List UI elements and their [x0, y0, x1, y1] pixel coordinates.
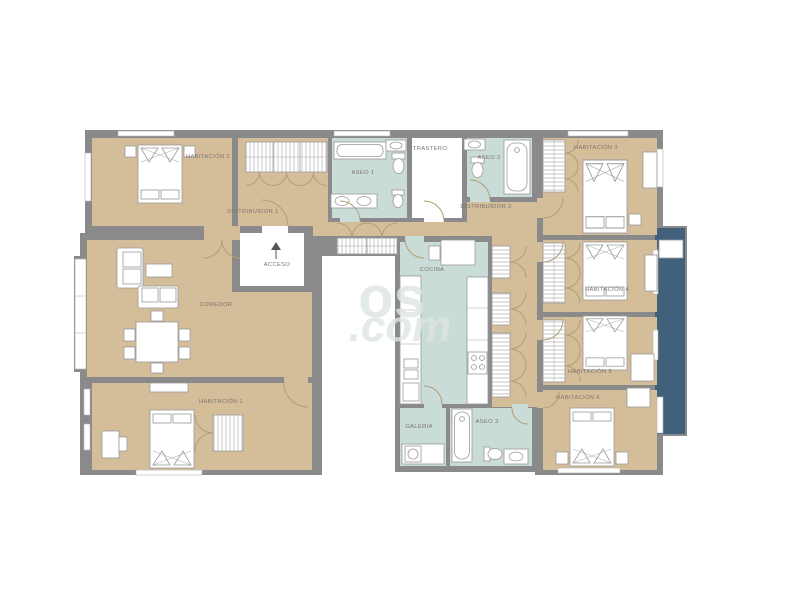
- desk: [643, 152, 657, 188]
- balcony-table: [659, 240, 683, 258]
- room-label-aseo-3: ASEO 3: [475, 419, 498, 425]
- nightstand: [629, 214, 641, 225]
- room-label-distribuidor-2: DISTRIBUIDOR 2: [460, 204, 511, 210]
- room-label-aseo-2: ASEO 2: [477, 155, 500, 161]
- nightstand: [616, 452, 628, 464]
- room-label-distribuidor-1: DISTRIBUIDOR 1: [227, 209, 278, 215]
- chair: [119, 437, 127, 451]
- desk: [627, 388, 650, 407]
- floor-plan-image: ACCESO HABITACIÓN 2 DISTRIBUIDOR 1 ASEO …: [0, 0, 800, 600]
- chair: [151, 311, 163, 321]
- room-label-habitacion-4: HABITACIÓN 4: [585, 286, 629, 293]
- kitchen-table: [441, 240, 475, 265]
- room-label-habitacion-3: HABITACIÓN 3: [574, 144, 618, 151]
- chair: [151, 363, 163, 373]
- room-label-habitacion-5: HABITACIÓN 5: [568, 368, 612, 375]
- room-label-comedor: COMEDOR: [200, 302, 233, 308]
- counter: [467, 277, 488, 404]
- nightstand: [125, 146, 136, 157]
- desk: [102, 431, 119, 458]
- room-label-habitacion-6: HABITACIÓN 6: [556, 394, 600, 401]
- shelf: [150, 383, 188, 392]
- double-sink: [331, 194, 377, 208]
- coffee-table: [146, 264, 172, 277]
- desk: [631, 354, 654, 381]
- nightstand: [556, 452, 568, 464]
- room-label-aseo-1: ASEO 1: [351, 170, 374, 176]
- entry-door-gap: [262, 226, 288, 240]
- bay-window: [75, 259, 86, 369]
- desk: [645, 255, 657, 291]
- room-label-acceso: ACCESO: [264, 262, 291, 268]
- room-label-galeria: GALERÍA: [405, 423, 433, 430]
- chair: [179, 329, 190, 341]
- chair: [429, 246, 440, 260]
- room-habitacion-1: [92, 383, 312, 470]
- chair: [124, 347, 135, 359]
- floor-plan-svg: ACCESO HABITACIÓN 2 DISTRIBUIDOR 1 ASEO …: [0, 0, 800, 600]
- sink: [504, 449, 528, 464]
- chair: [179, 347, 190, 359]
- room-label-habitacion-2: HABITACIÓN 2: [186, 153, 230, 160]
- watermark-text-2: .com: [349, 302, 452, 351]
- galeria-fixtures: [402, 444, 444, 464]
- room-label-habitacion-1: HABITACIÓN 1: [199, 398, 243, 405]
- chair: [124, 329, 135, 341]
- entry-vestibule: [240, 233, 304, 286]
- room-label-trastero: TRASTERO: [413, 146, 448, 152]
